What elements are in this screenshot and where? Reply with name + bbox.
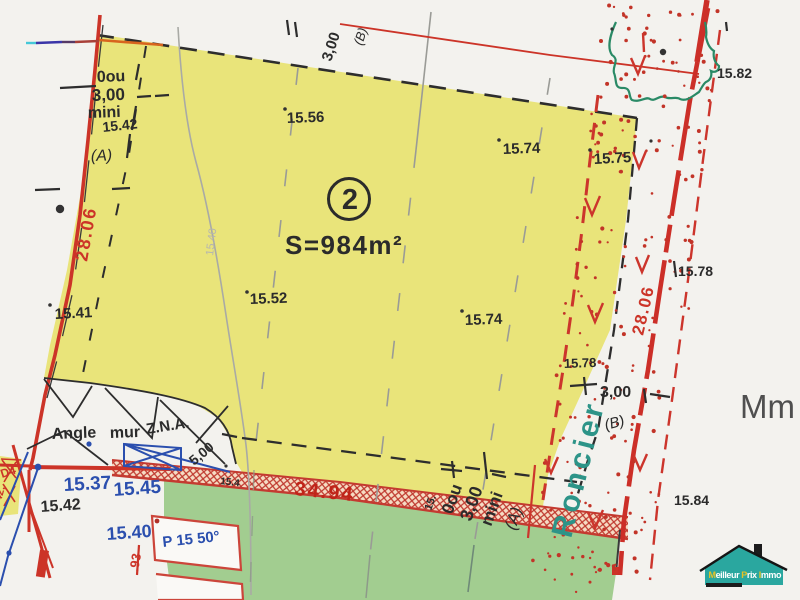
svg-text:Mm: Mm — [740, 388, 795, 425]
svg-text:15.41: 15.41 — [54, 304, 92, 323]
svg-text:Angle: Angle — [52, 424, 97, 443]
svg-text:15.82: 15.82 — [717, 65, 752, 81]
svg-text:15.74: 15.74 — [465, 311, 504, 329]
svg-text:mur: mur — [110, 424, 141, 442]
svg-text:15.42: 15.42 — [40, 496, 81, 516]
svg-text:3,00: 3,00 — [600, 384, 631, 401]
svg-text:mini: mini — [88, 104, 121, 122]
svg-text:.93: .93 — [126, 552, 144, 572]
svg-text:15.74: 15.74 — [503, 140, 542, 158]
svg-text:15.84: 15.84 — [674, 492, 709, 508]
svg-text:(A): (A) — [91, 147, 113, 165]
svg-text:15.45: 15.45 — [113, 477, 162, 501]
svg-text:3,00: 3,00 — [91, 85, 125, 105]
svg-text:Meilleur Prix Immo: Meilleur Prix Immo — [709, 570, 783, 580]
svg-text:15.37: 15.37 — [63, 473, 112, 496]
svg-text:S=984m²: S=984m² — [285, 230, 403, 260]
svg-text:15.40: 15.40 — [106, 521, 152, 544]
svg-text:15.78: 15.78 — [678, 263, 713, 279]
svg-text:15.52: 15.52 — [250, 290, 288, 308]
svg-text:2: 2 — [342, 184, 358, 216]
svg-text:15.78: 15.78 — [564, 355, 597, 371]
svg-text:0ou: 0ou — [97, 68, 126, 86]
svg-text:15.75: 15.75 — [593, 149, 631, 168]
svg-text:15.56: 15.56 — [287, 109, 325, 127]
